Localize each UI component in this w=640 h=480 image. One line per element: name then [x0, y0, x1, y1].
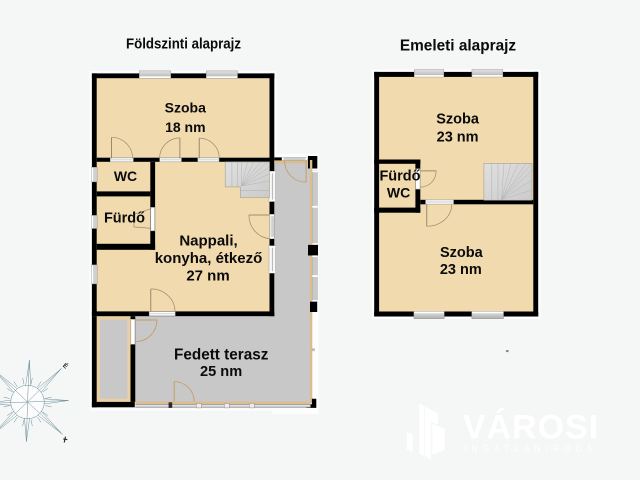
- svg-text:27 nm: 27 nm: [186, 267, 229, 284]
- svg-text:Földszinti alaprajz: Földszinti alaprajz: [126, 36, 241, 52]
- svg-text:Fedett terasz: Fedett terasz: [174, 347, 269, 364]
- svg-text:Szoba: Szoba: [165, 99, 206, 115]
- svg-text:konyha, étkező: konyha, étkező: [155, 250, 263, 267]
- svg-text:23 nm: 23 nm: [440, 262, 482, 278]
- svg-text:WC: WC: [114, 168, 137, 184]
- svg-text:Emeleti alaprajz: Emeleti alaprajz: [400, 37, 516, 54]
- svg-text:18 nm: 18 nm: [165, 119, 205, 135]
- svg-text:25 nm: 25 nm: [200, 364, 242, 380]
- svg-text:INGATLANIRODA: INGATLANIRODA: [464, 444, 597, 454]
- svg-text:Szoba: Szoba: [440, 245, 484, 261]
- svg-text:Nappali,: Nappali,: [179, 233, 237, 250]
- svg-text:23 nm: 23 nm: [437, 130, 479, 146]
- svg-text:Fürdő: Fürdő: [104, 211, 145, 227]
- svg-text:VÁROSI: VÁROSI: [463, 409, 599, 447]
- svg-text:Szoba: Szoba: [436, 111, 480, 127]
- svg-text:Fürdő: Fürdő: [379, 169, 420, 185]
- svg-text:WC: WC: [387, 184, 410, 200]
